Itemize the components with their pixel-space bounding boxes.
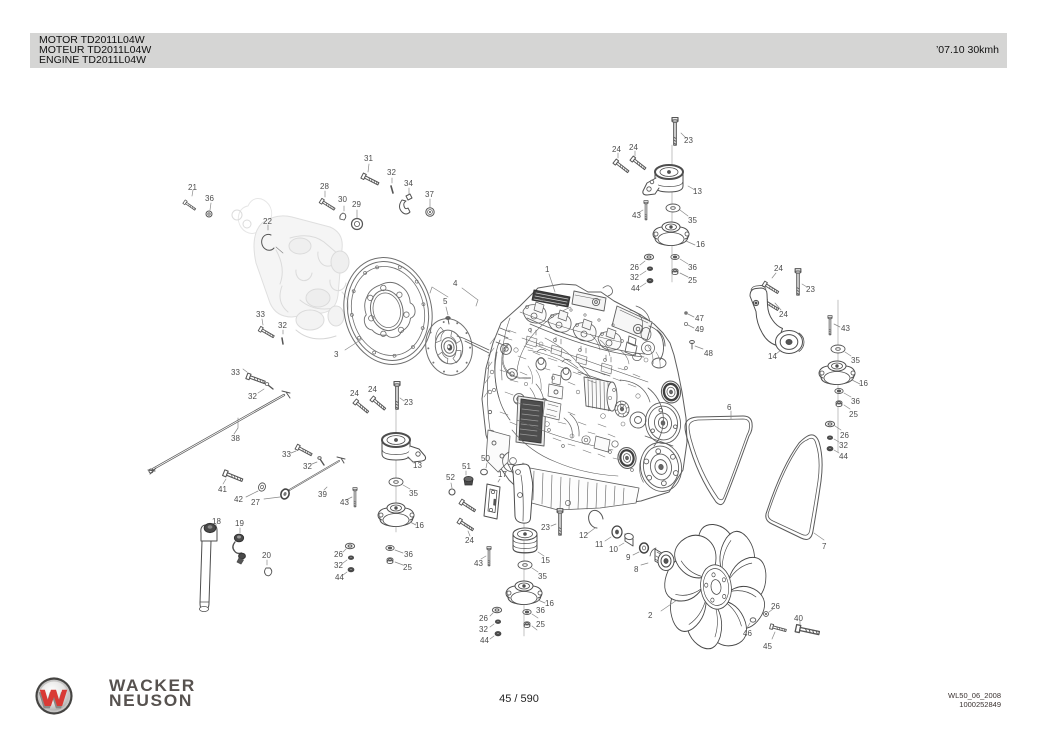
svg-text:36: 36 bbox=[205, 194, 214, 203]
svg-text:21: 21 bbox=[188, 183, 197, 192]
svg-text:25: 25 bbox=[403, 563, 412, 572]
svg-text:17: 17 bbox=[498, 470, 507, 479]
svg-text:44: 44 bbox=[839, 452, 848, 461]
svg-text:16: 16 bbox=[696, 240, 705, 249]
svg-text:10: 10 bbox=[609, 545, 618, 554]
svg-text:23: 23 bbox=[684, 136, 693, 145]
svg-text:32: 32 bbox=[839, 441, 848, 450]
svg-text:45: 45 bbox=[763, 642, 772, 651]
svg-text:3: 3 bbox=[334, 350, 339, 359]
svg-text:24: 24 bbox=[368, 385, 377, 394]
svg-text:9: 9 bbox=[626, 553, 631, 562]
svg-text:28: 28 bbox=[320, 182, 329, 191]
svg-text:2: 2 bbox=[648, 611, 653, 620]
svg-text:26: 26 bbox=[771, 602, 780, 611]
svg-text:43: 43 bbox=[340, 498, 349, 507]
svg-text:32: 32 bbox=[387, 168, 396, 177]
svg-text:24: 24 bbox=[629, 143, 638, 152]
svg-text:43: 43 bbox=[632, 211, 641, 220]
svg-text:52: 52 bbox=[446, 473, 455, 482]
svg-text:26: 26 bbox=[479, 614, 488, 623]
svg-text:7: 7 bbox=[822, 542, 827, 551]
svg-text:26: 26 bbox=[630, 263, 639, 272]
svg-text:40: 40 bbox=[794, 614, 803, 623]
svg-text:23: 23 bbox=[806, 285, 815, 294]
svg-text:13: 13 bbox=[693, 187, 702, 196]
svg-text:33: 33 bbox=[231, 368, 240, 377]
svg-text:11: 11 bbox=[595, 540, 604, 549]
svg-text:50: 50 bbox=[481, 454, 490, 463]
svg-text:47: 47 bbox=[695, 314, 704, 323]
svg-text:6: 6 bbox=[727, 403, 732, 412]
svg-text:38: 38 bbox=[231, 434, 240, 443]
svg-text:25: 25 bbox=[688, 276, 697, 285]
svg-text:35: 35 bbox=[851, 356, 860, 365]
svg-text:35: 35 bbox=[409, 489, 418, 498]
svg-text:48: 48 bbox=[704, 349, 713, 358]
svg-text:37: 37 bbox=[425, 190, 434, 199]
svg-text:16: 16 bbox=[415, 521, 424, 530]
svg-text:43: 43 bbox=[841, 324, 850, 333]
svg-text:41: 41 bbox=[218, 485, 227, 494]
svg-text:24: 24 bbox=[465, 536, 474, 545]
svg-text:18: 18 bbox=[212, 517, 221, 526]
svg-text:24: 24 bbox=[612, 145, 621, 154]
svg-text:14: 14 bbox=[768, 352, 777, 361]
svg-text:32: 32 bbox=[630, 273, 639, 282]
svg-text:23: 23 bbox=[404, 398, 413, 407]
svg-text:44: 44 bbox=[480, 636, 489, 645]
svg-text:36: 36 bbox=[851, 397, 860, 406]
svg-text:32: 32 bbox=[278, 321, 287, 330]
svg-text:26: 26 bbox=[840, 431, 849, 440]
svg-text:23: 23 bbox=[541, 523, 550, 532]
svg-text:35: 35 bbox=[688, 216, 697, 225]
svg-text:34: 34 bbox=[404, 179, 413, 188]
svg-text:30: 30 bbox=[338, 195, 347, 204]
svg-text:24: 24 bbox=[774, 264, 783, 273]
svg-text:32: 32 bbox=[334, 561, 343, 570]
svg-text:13: 13 bbox=[413, 461, 422, 470]
svg-text:19: 19 bbox=[235, 519, 244, 528]
svg-text:32: 32 bbox=[479, 625, 488, 634]
svg-text:32: 32 bbox=[303, 462, 312, 471]
svg-text:25: 25 bbox=[536, 620, 545, 629]
svg-text:8: 8 bbox=[634, 565, 639, 574]
svg-text:22: 22 bbox=[263, 217, 272, 226]
svg-text:29: 29 bbox=[352, 200, 361, 209]
svg-text:33: 33 bbox=[282, 450, 291, 459]
svg-text:46: 46 bbox=[743, 629, 752, 638]
svg-text:39: 39 bbox=[318, 490, 327, 499]
svg-text:16: 16 bbox=[859, 379, 868, 388]
svg-text:35: 35 bbox=[538, 572, 547, 581]
svg-text:25: 25 bbox=[849, 410, 858, 419]
svg-text:4: 4 bbox=[453, 279, 458, 288]
svg-text:27: 27 bbox=[251, 498, 260, 507]
svg-text:51: 51 bbox=[462, 462, 471, 471]
svg-text:20: 20 bbox=[262, 551, 271, 560]
svg-text:15: 15 bbox=[541, 556, 550, 565]
svg-text:36: 36 bbox=[688, 263, 697, 272]
svg-text:32: 32 bbox=[248, 392, 257, 401]
svg-text:24: 24 bbox=[779, 310, 788, 319]
svg-text:33: 33 bbox=[256, 310, 265, 319]
svg-text:12: 12 bbox=[579, 531, 588, 540]
svg-text:24: 24 bbox=[350, 389, 359, 398]
svg-text:43: 43 bbox=[474, 559, 483, 568]
svg-text:1: 1 bbox=[545, 265, 550, 274]
svg-text:26: 26 bbox=[334, 550, 343, 559]
svg-text:44: 44 bbox=[631, 284, 640, 293]
svg-text:36: 36 bbox=[536, 606, 545, 615]
svg-text:42: 42 bbox=[234, 495, 243, 504]
svg-text:49: 49 bbox=[695, 325, 704, 334]
svg-text:5: 5 bbox=[443, 297, 448, 306]
svg-text:36: 36 bbox=[404, 550, 413, 559]
svg-text:31: 31 bbox=[364, 154, 373, 163]
svg-text:44: 44 bbox=[335, 573, 344, 582]
svg-text:16: 16 bbox=[545, 599, 554, 608]
